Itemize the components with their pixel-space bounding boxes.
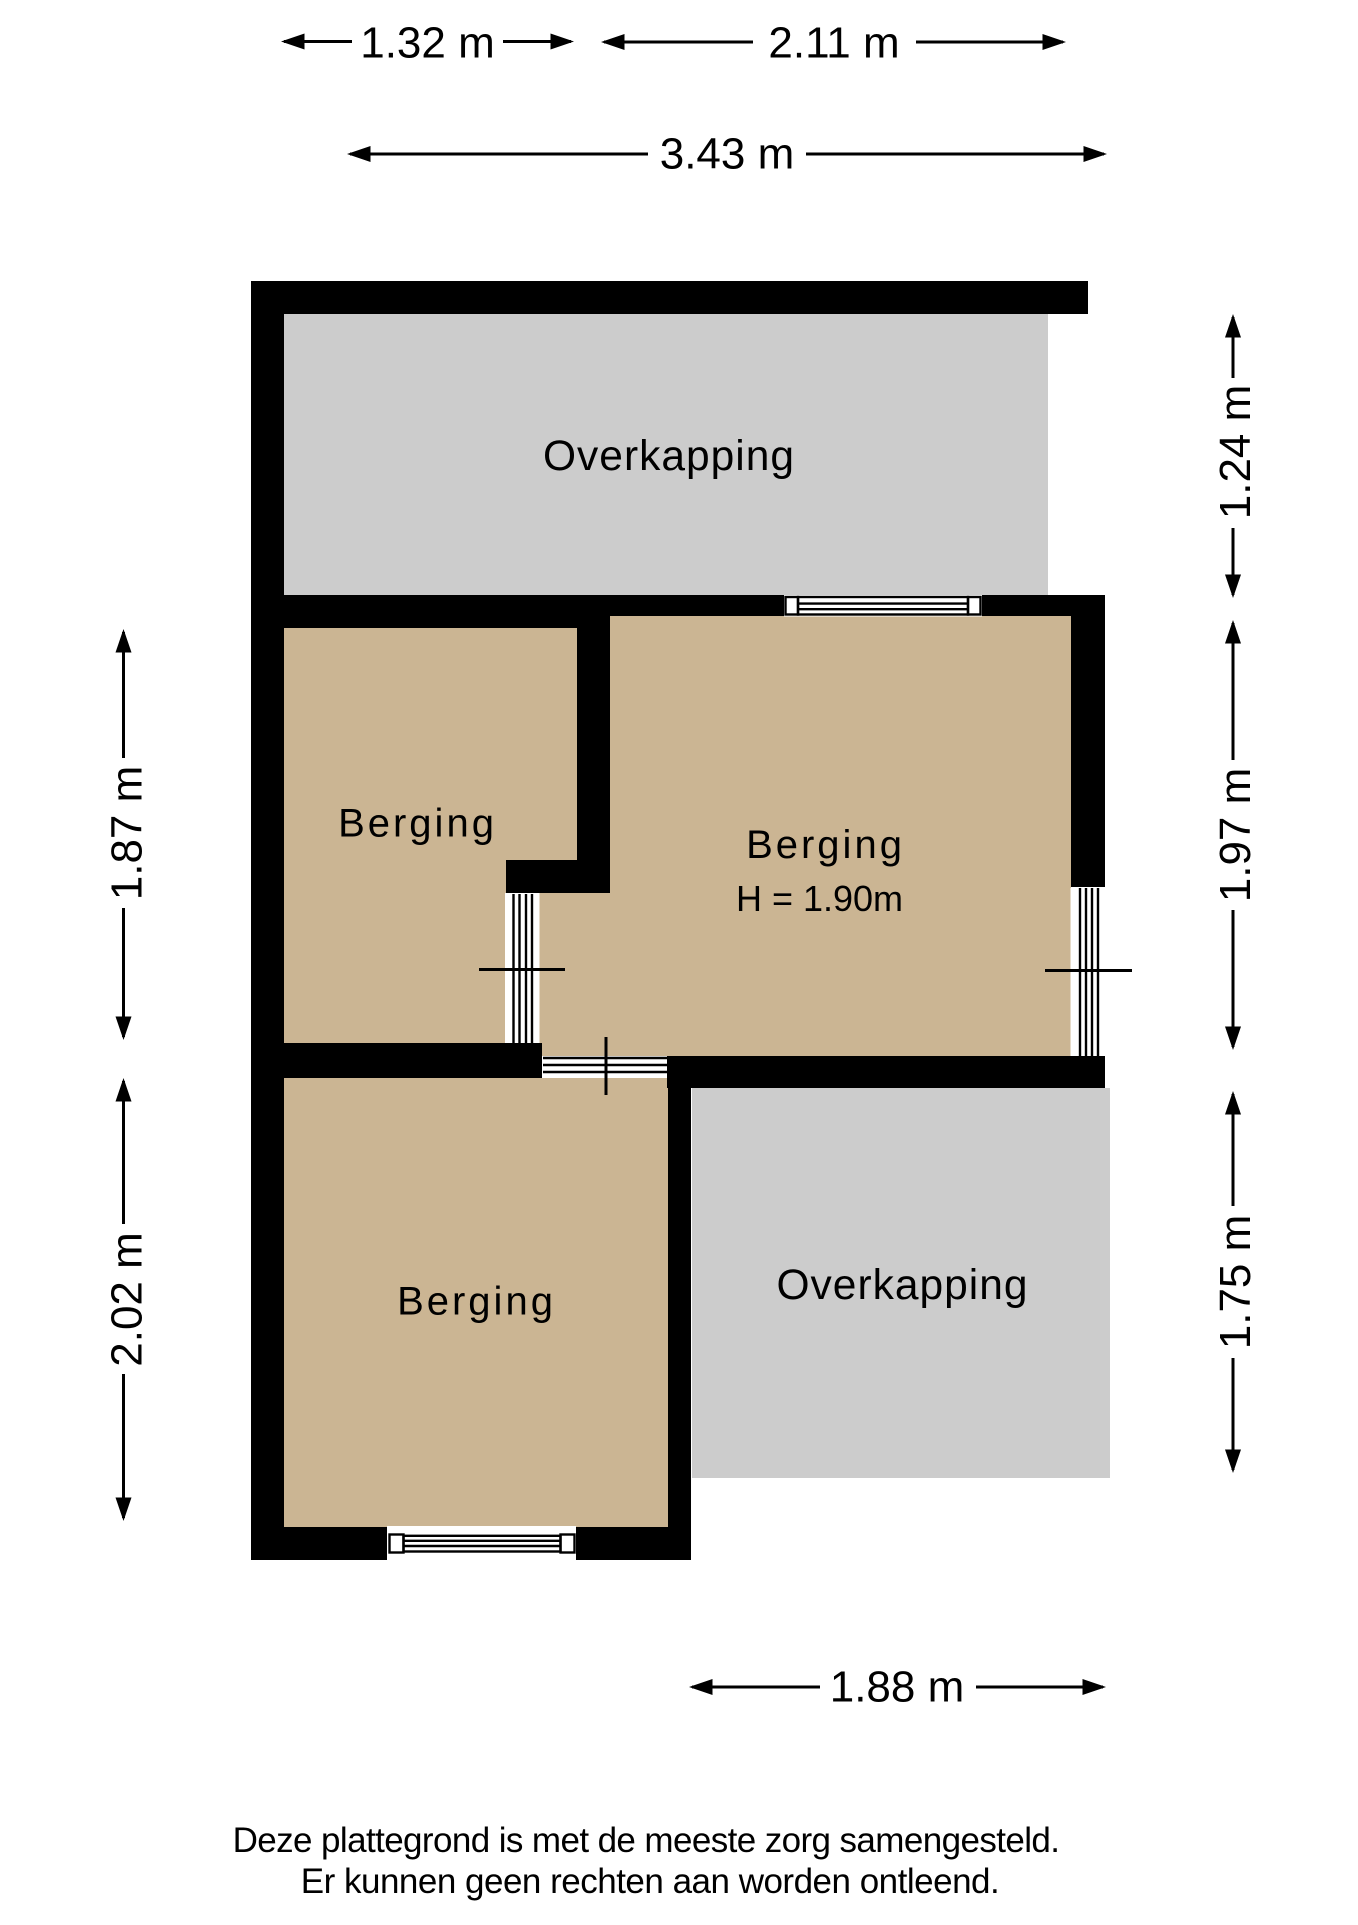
svg-text:Berging: Berging	[746, 823, 905, 867]
svg-text:Overkapping: Overkapping	[543, 433, 795, 480]
svg-text:Berging: Berging	[397, 1280, 556, 1324]
svg-text:1.88 m: 1.88 m	[830, 1663, 965, 1712]
svg-text:2.02 m: 2.02 m	[103, 1232, 152, 1367]
svg-text:Overkapping: Overkapping	[777, 1262, 1029, 1309]
svg-text:2.11 m: 2.11 m	[768, 19, 899, 68]
svg-text:1.97 m: 1.97 m	[1211, 768, 1260, 903]
svg-text:Er kunnen geen rechten aan wor: Er kunnen geen rechten aan worden ontlee…	[301, 1862, 999, 1901]
svg-text:1.32 m: 1.32 m	[360, 19, 495, 68]
svg-text:1.75 m: 1.75 m	[1211, 1215, 1260, 1350]
svg-text:3.43 m: 3.43 m	[660, 130, 795, 179]
svg-text:1.24 m: 1.24 m	[1211, 385, 1260, 520]
svg-text:Berging: Berging	[338, 802, 497, 846]
svg-text:Deze plattegrond is met de mee: Deze plattegrond is met de meeste zorg s…	[233, 1821, 1060, 1860]
svg-text:H = 1.90m: H = 1.90m	[736, 878, 903, 919]
svg-text:1.87 m: 1.87 m	[103, 766, 152, 901]
